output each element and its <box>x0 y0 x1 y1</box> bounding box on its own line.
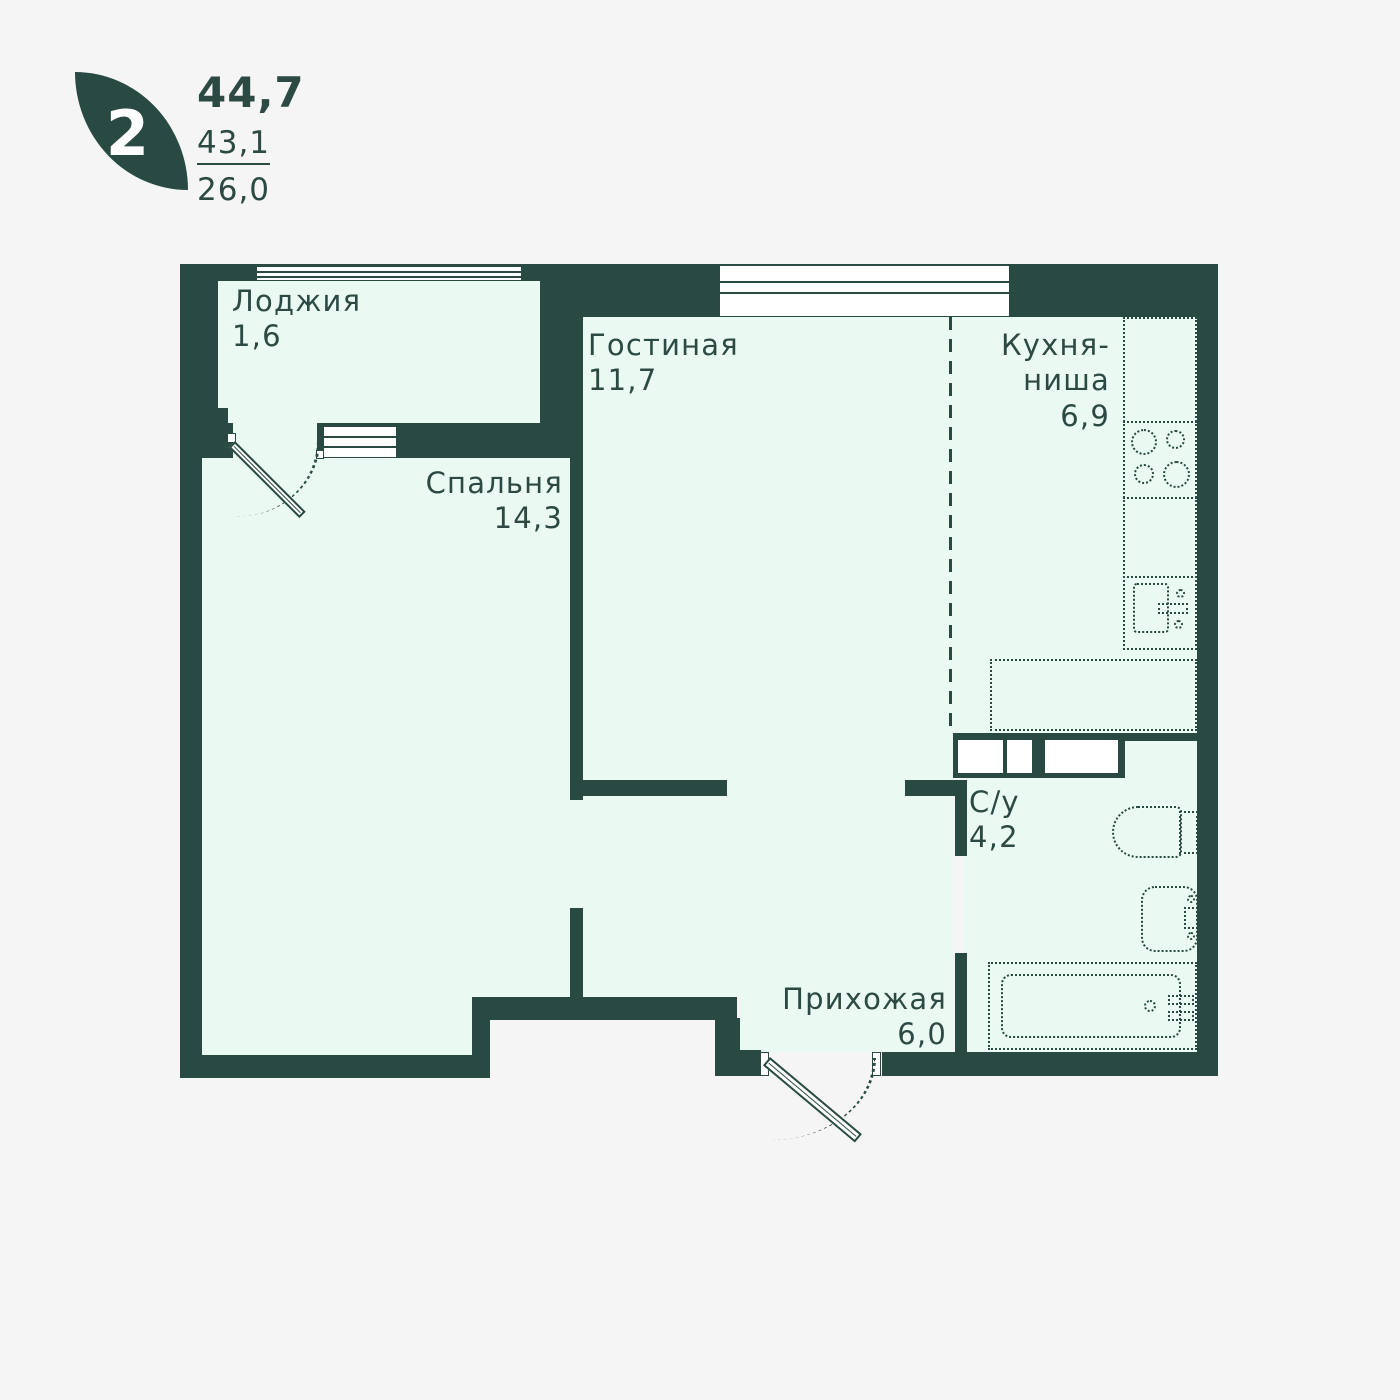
room-area: 6,0 <box>782 1017 947 1052</box>
window-pane-line <box>720 292 1009 294</box>
bathtub-tap <box>1168 995 1194 1005</box>
window-pane-line <box>720 281 1009 283</box>
rooms-count: 2 <box>106 97 149 170</box>
wall-segment <box>955 780 967 856</box>
room-label-bedroom: Спальня 14,3 <box>426 466 563 537</box>
kitchen-counter-bottom <box>990 659 1197 731</box>
floor-plan-page: 2 44,7 43,1 26,0 <box>0 0 1400 1400</box>
washbasin-tap <box>1184 907 1198 929</box>
kitchen-sink-knob <box>1174 620 1183 629</box>
window-pane-line <box>324 436 396 438</box>
bathtub-tap <box>1168 1011 1194 1021</box>
wardrobe-compartment <box>1045 740 1118 773</box>
room-label-hallway: Прихожая 6,0 <box>782 982 947 1053</box>
wall-segment <box>1125 733 1197 741</box>
entrance-door-swing-arc <box>772 1058 876 1140</box>
room-label-living: Гостиная 11,7 <box>588 328 739 399</box>
room-name: Лоджия <box>232 284 361 319</box>
room-name: С/у <box>969 785 1020 820</box>
washbasin-knob <box>1187 932 1195 940</box>
room-name: ниша <box>1001 363 1110 398</box>
wall-segment <box>882 1052 1218 1076</box>
stove-burner-icon <box>1163 461 1190 488</box>
loggia-window <box>256 266 522 281</box>
window-pane-line <box>257 271 521 273</box>
area-tertiary: 26,0 <box>197 175 305 206</box>
wall-segment <box>472 997 737 1020</box>
room-label-kitchen: Кухня- ниша 6,9 <box>1001 328 1110 434</box>
toilet-bowl <box>1112 806 1182 858</box>
room-name: Спальня <box>426 466 563 501</box>
wall-segment <box>905 780 955 796</box>
bedroom-floor-extension <box>202 458 472 1055</box>
wall-segment <box>472 997 490 1078</box>
passage-opening <box>727 780 905 796</box>
room-name: Прихожая <box>782 982 947 1017</box>
loggia-bedroom-window <box>323 426 397 458</box>
window-pane-line <box>324 446 396 448</box>
counter-divider <box>1123 421 1197 423</box>
toilet-tank <box>1179 811 1198 854</box>
wall-segment <box>570 908 583 1000</box>
living-room-window <box>719 265 1010 317</box>
bathtub-drain <box>1144 1000 1156 1012</box>
room-area: 4,2 <box>969 820 1020 855</box>
kitchen-sink-knob <box>1176 589 1185 598</box>
room-label-bathroom: С/у 4,2 <box>969 785 1020 856</box>
room-label-loggia: Лоджия 1,6 <box>232 284 361 355</box>
wardrobe-compartment <box>1007 740 1032 773</box>
wall-segment <box>955 953 967 1052</box>
room-area: 11,7 <box>588 363 739 398</box>
wardrobe-compartment <box>958 740 1003 773</box>
room-area: 14,3 <box>426 501 563 536</box>
area-secondary: 43,1 <box>197 128 270 165</box>
bedroom-door-opening <box>570 800 583 908</box>
room-area: 1,6 <box>232 319 361 354</box>
kitchen-zone-divider <box>949 317 952 733</box>
area-total: 44,7 <box>197 72 305 114</box>
stove-burner-icon <box>1131 429 1157 455</box>
wall-segment <box>570 458 583 800</box>
wall-segment <box>180 1055 490 1078</box>
counter-divider <box>1123 576 1197 578</box>
room-area: 6,9 <box>1001 399 1110 434</box>
area-summary: 44,7 43,1 26,0 <box>197 72 305 206</box>
stove-burner-icon <box>1166 430 1185 449</box>
room-name: Кухня- <box>1001 328 1110 363</box>
room-name: Гостиная <box>588 328 739 363</box>
wall-segment <box>717 1050 761 1076</box>
washbasin-knob <box>1187 895 1195 903</box>
wall-segment <box>1197 264 1218 1076</box>
kitchen-sink-tap <box>1158 603 1188 614</box>
hallway-floor <box>583 795 953 997</box>
window-pane-line <box>257 276 521 278</box>
stove-burner-icon <box>1134 464 1154 484</box>
counter-divider <box>1123 497 1197 499</box>
rooms-count-badge: 2 <box>75 72 188 190</box>
wall-segment <box>583 780 727 796</box>
